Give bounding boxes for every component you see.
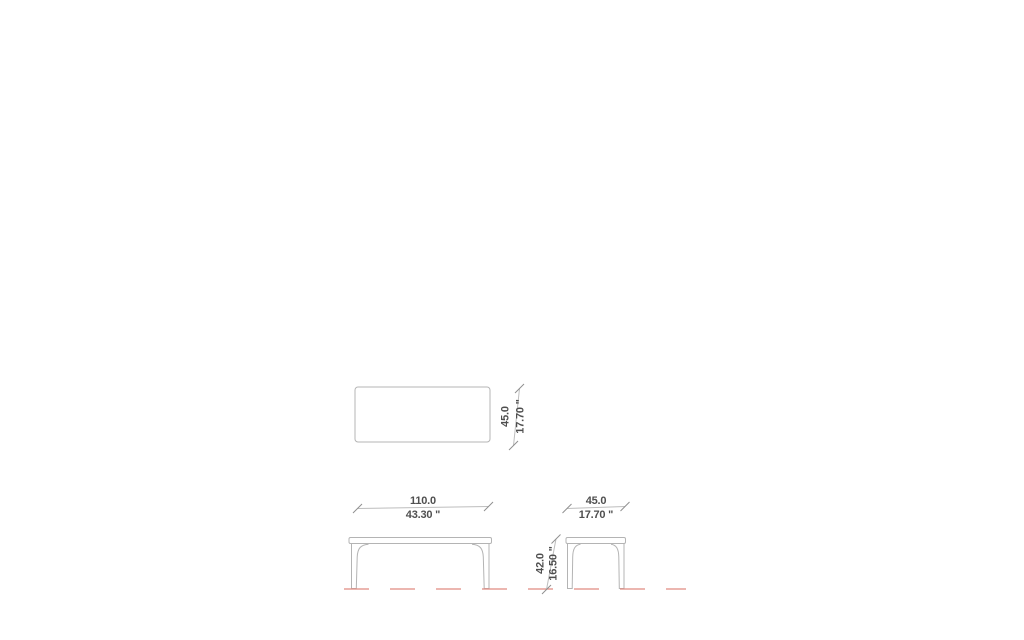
side-right-leg-outline [611, 544, 624, 589]
front-right-leg-outline [472, 544, 489, 589]
top-depth-metric-label: 45.0 [499, 382, 512, 452]
side-depth-imperial-label: 17.70 " [561, 509, 631, 522]
dimension-drawing-canvas: 110.0 43.30 " 45.0 17.70 " 45.0 17.70 " … [0, 0, 1024, 640]
side-view-outline [566, 538, 626, 589]
top-depth-imperial-label: 17.70 " [515, 382, 528, 452]
front-view-outline [349, 538, 492, 589]
drawing-svg [0, 0, 1024, 640]
tabletop-plan-outline [355, 387, 490, 442]
front-width-metric-label: 110.0 [388, 495, 458, 508]
tabletop-front-outline [349, 538, 492, 544]
top-view-outline [355, 387, 490, 442]
front-width-imperial-label: 43.30 " [388, 509, 458, 522]
side-left-leg-outline [568, 544, 581, 589]
height-metric-label: 42.0 [534, 528, 547, 598]
side-depth-metric-label: 45.0 [561, 495, 631, 508]
tabletop-side-outline [566, 538, 626, 544]
front-left-leg-outline [352, 544, 369, 589]
height-imperial-label: 16.50 " [547, 528, 560, 598]
